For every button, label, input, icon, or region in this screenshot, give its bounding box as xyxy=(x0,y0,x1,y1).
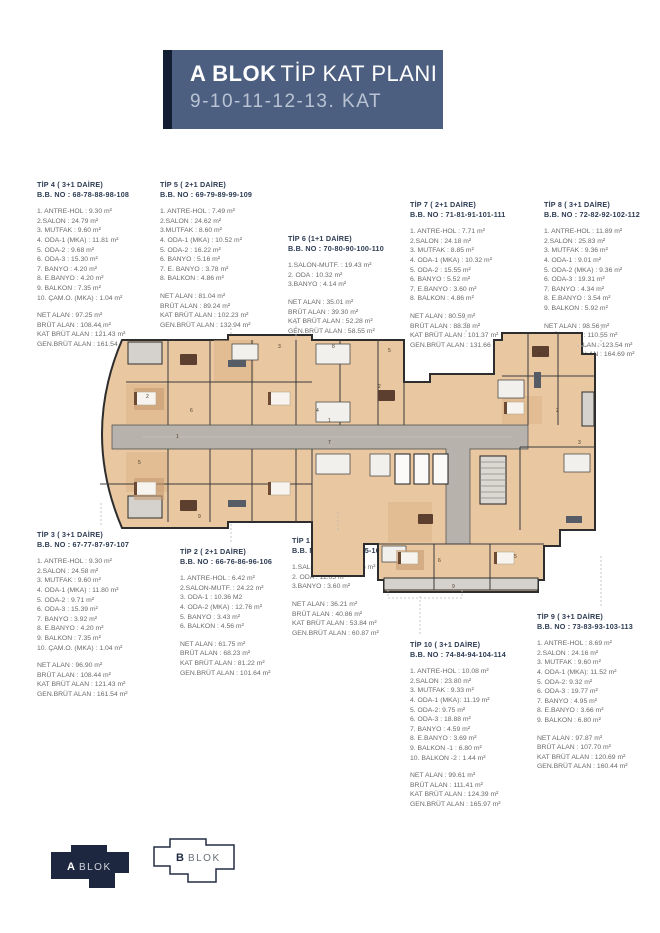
block-a-label: ABLOK xyxy=(67,861,112,873)
floor-plan: 2563817425623269519 xyxy=(82,332,596,594)
svg-text:1: 1 xyxy=(176,434,179,440)
unit-total-list: NET ALAN : 81.04 m²BRÜT ALAN : 89.24 m²K… xyxy=(160,292,286,330)
page-header: A BLOKTİP KAT PLANI 9-10-11-12-13. KAT xyxy=(163,50,443,129)
unit-bbno: B.B. NO : 73-83-93-103-113 xyxy=(537,622,657,632)
unit-info-tip6: TİP 6 (1+1 DAİRE) B.B. NO : 70-80-90-100… xyxy=(288,234,414,336)
unit-bbno: B.B. NO : 72-82-92-102-112 xyxy=(544,210,658,220)
svg-text:3: 3 xyxy=(278,344,281,350)
svg-text:4: 4 xyxy=(316,408,319,414)
block-b-button[interactable]: BBLOK xyxy=(146,834,242,900)
svg-text:8: 8 xyxy=(332,344,335,350)
unit-title: TİP 8 ( 3+1 DAİRE) xyxy=(544,200,658,210)
svg-text:3: 3 xyxy=(578,440,581,446)
unit-room-list: 1. ANTRE-HOL : 11.89 m²2.SALON : 25.83 m… xyxy=(544,227,658,313)
unit-room-list: 1.SALON-MUTF. : 19.43 m²2. ODA : 10.32 m… xyxy=(288,261,414,290)
unit-info-tip9: TİP 9 ( 3+1 DAİRE) B.B. NO : 73-83-93-10… xyxy=(537,612,657,772)
header-title: A BLOKTİP KAT PLANI xyxy=(190,61,443,87)
floor-plan-page: A BLOKTİP KAT PLANI 9-10-11-12-13. KAT T… xyxy=(0,0,660,933)
svg-text:5: 5 xyxy=(138,460,141,466)
svg-text:6: 6 xyxy=(190,408,193,414)
svg-text:6: 6 xyxy=(538,352,541,358)
unit-total-list: NET ALAN : 97.87 m²BRÜT ALAN : 107.70 m²… xyxy=(537,734,657,772)
svg-text:2: 2 xyxy=(398,560,401,566)
unit-info-tip7: TİP 7 ( 2+1 DAİRE) B.B. NO : 71-81-91-10… xyxy=(410,200,536,350)
block-b-label: BBLOK xyxy=(176,852,221,864)
svg-text:5: 5 xyxy=(514,554,517,560)
unit-total-list: NET ALAN : 96.90 m²BRÜT ALAN : 108.44 m²… xyxy=(37,661,163,699)
svg-text:1: 1 xyxy=(328,418,331,424)
unit-room-list: 1. ANTRE-HOL : 10.08 m²2.SALON : 23.80 m… xyxy=(410,667,536,763)
unit-bbno: B.B. NO : 68-78-88-98-108 xyxy=(37,190,163,200)
page-title: TİP KAT PLANI xyxy=(281,61,438,86)
unit-bbno: B.B. NO : 70-80-90-100-110 xyxy=(288,244,414,254)
svg-text:6: 6 xyxy=(438,558,441,564)
unit-total-list: NET ALAN : 99.61 m²BRÜT ALAN : 111.41 m²… xyxy=(410,771,536,809)
unit-room-list: 1. ANTRE-HOL : 9.30 m²2.SALON : 24.79 m²… xyxy=(37,207,163,303)
svg-text:9: 9 xyxy=(452,584,455,590)
unit-title: TİP 5 ( 2+1 DAİRE) xyxy=(160,180,286,190)
block-a-button[interactable]: ABLOK xyxy=(44,841,136,903)
block-name: A BLOK xyxy=(190,61,277,86)
svg-text:2: 2 xyxy=(556,408,559,414)
unit-total-list: NET ALAN : 36.21 m²BRÜT ALAN : 40.86 m²K… xyxy=(292,600,418,638)
unit-room-list: 1. ANTRE-HOL : 7.49 m²2.SALON : 24.62 m²… xyxy=(160,207,286,284)
unit-total-list: NET ALAN : 61.75 m²BRÜT ALAN : 68.23 m²K… xyxy=(180,640,306,678)
unit-title: TİP 9 ( 3+1 DAİRE) xyxy=(537,612,657,622)
unit-info-tip5: TİP 5 ( 2+1 DAİRE) B.B. NO : 69-79-89-99… xyxy=(160,180,286,330)
floor-range: 9-10-11-12-13. KAT xyxy=(190,91,443,113)
unit-title: TİP 7 ( 2+1 DAİRE) xyxy=(410,200,536,210)
svg-text:9: 9 xyxy=(198,514,201,520)
unit-total-list: NET ALAN : 35.01 m²BRÜT ALAN : 39.30 m²K… xyxy=(288,298,414,336)
unit-room-list: 1. ANTRE-HOL : 8.69 m²2.SALON : 24.16 m²… xyxy=(537,639,657,725)
unit-info-tip10: TİP 10 ( 3+1 DAİRE) B.B. NO : 74-84-94-1… xyxy=(410,640,536,810)
header-accent-bar xyxy=(163,50,172,129)
unit-title: TİP 6 (1+1 DAİRE) xyxy=(288,234,414,244)
unit-bbno: B.B. NO : 74-84-94-104-114 xyxy=(410,650,536,660)
unit-bbno: B.B. NO : 71-81-91-101-111 xyxy=(410,210,536,220)
svg-text:2: 2 xyxy=(146,394,149,400)
unit-room-list: 1. ANTRE-HOL : 7.71 m²2.SALON : 24.18 m²… xyxy=(410,227,536,304)
svg-text:7: 7 xyxy=(328,440,331,446)
header-body: A BLOKTİP KAT PLANI 9-10-11-12-13. KAT xyxy=(172,50,443,129)
stairwell xyxy=(480,456,506,504)
unit-title: TİP 4 ( 3+1 DAİRE) xyxy=(37,180,163,190)
svg-text:2: 2 xyxy=(378,384,381,390)
svg-text:5: 5 xyxy=(388,348,391,354)
unit-info-tip4: TİP 4 ( 3+1 DAİRE) B.B. NO : 68-78-88-98… xyxy=(37,180,163,350)
unit-bbno: B.B. NO : 69-79-89-99-109 xyxy=(160,190,286,200)
unit-title: TİP 10 ( 3+1 DAİRE) xyxy=(410,640,536,650)
